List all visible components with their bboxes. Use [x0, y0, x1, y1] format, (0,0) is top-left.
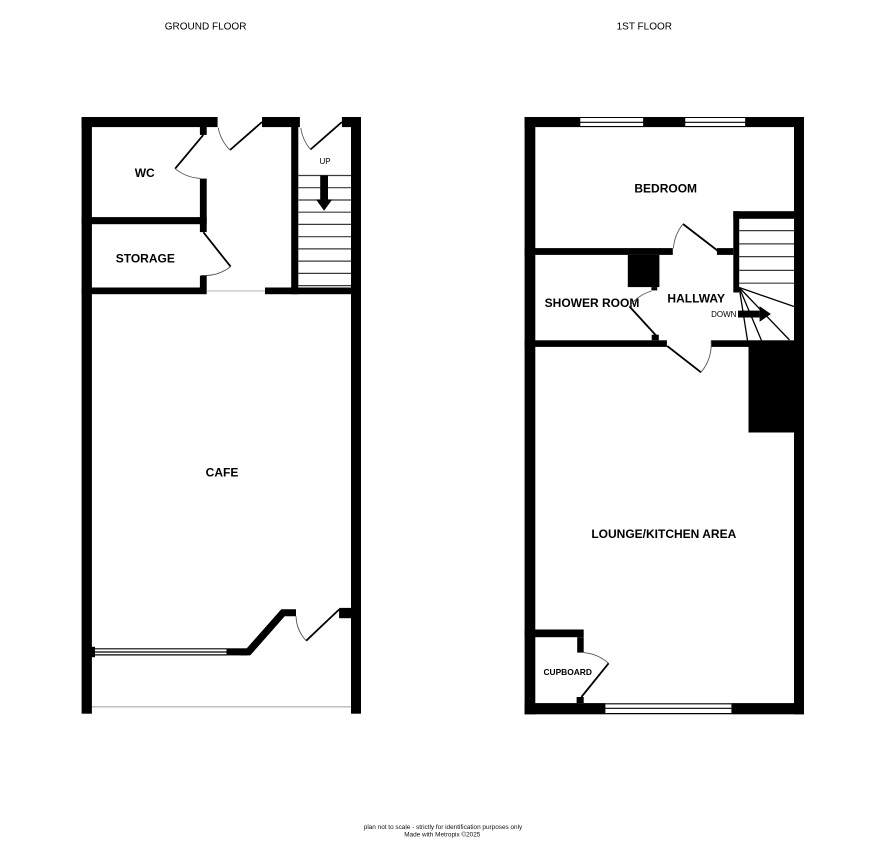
svg-text:WC: WC	[135, 166, 155, 180]
svg-text:GROUND FLOOR: GROUND FLOOR	[165, 22, 247, 33]
svg-text:CAFE: CAFE	[206, 465, 239, 479]
svg-text:BEDROOM: BEDROOM	[634, 181, 697, 195]
svg-text:Made with Metropix ©2025: Made with Metropix ©2025	[404, 831, 481, 839]
svg-text:HALLWAY: HALLWAY	[667, 292, 725, 306]
svg-text:UP: UP	[319, 157, 330, 166]
svg-text:1ST FLOOR: 1ST FLOOR	[617, 22, 672, 33]
svg-text:CUPBOARD: CUPBOARD	[544, 667, 592, 677]
svg-text:STORAGE: STORAGE	[116, 251, 175, 265]
svg-text:SHOWER ROOM: SHOWER ROOM	[545, 296, 640, 310]
svg-text:DOWN: DOWN	[711, 310, 737, 319]
svg-text:plan not to scale - strictly f: plan not to scale - strictly for identif…	[364, 824, 523, 831]
svg-text:LOUNGE/KITCHEN AREA: LOUNGE/KITCHEN AREA	[591, 527, 736, 541]
